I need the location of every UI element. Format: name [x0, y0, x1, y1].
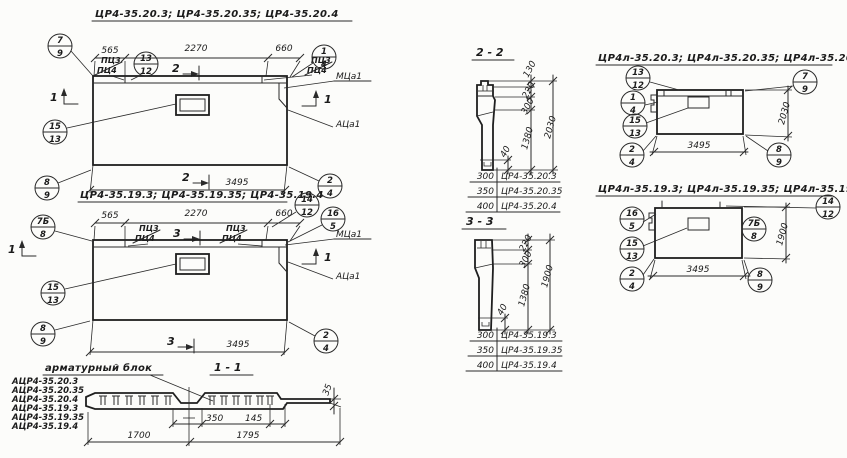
callout-bot: 4: [320, 60, 327, 70]
callout-top: 7Б: [748, 219, 761, 229]
callout-7-9: 7 9: [48, 34, 93, 76]
dim-stack: 220 300 1380 1900 40: [478, 233, 556, 334]
callout-top: 2: [327, 176, 333, 186]
dim-chain-top: 565 2270 660: [91, 209, 304, 241]
section-title: 3 - 3: [466, 215, 494, 228]
table-width: 400: [477, 202, 494, 212]
drawing-facade-l20: ЦР4л-35.20.3; ЦР4л-35.20.35; ЦР4л-35.20.…: [596, 53, 847, 168]
callout-7b-8: 7Б 8: [31, 215, 92, 241]
callout-top: 15: [629, 116, 641, 126]
callout-bot: 4: [326, 189, 333, 199]
rebar-item: АЦР4-35.19.4: [11, 422, 78, 432]
rebar-block-list: арматурный блок АЦР4-35.20.3 АЦР4-35.20.…: [11, 362, 213, 432]
section-title: 2 - 2: [476, 46, 504, 59]
drawing-title: ЦР4л-35.20.3; ЦР4л-35.20.35; ЦР4л-35.20.…: [598, 53, 847, 64]
callout-bot: 9: [802, 85, 808, 95]
dim-660: 660: [275, 44, 292, 54]
dim-3495: 3495: [688, 141, 711, 151]
tag-pc-right: ПЦ3 ПЦ4: [220, 224, 262, 246]
callout-top: 2: [629, 269, 635, 279]
callout-top: 8: [776, 145, 782, 155]
drawing-title: ЦР4-35.20.3; ЦР4-35.20.35; ЦР4-35.20.4: [95, 9, 339, 20]
label-aca1: АЦа1: [335, 272, 360, 282]
mark-table: 300 ЦР4-35.20.3 350 ЦР4-35.20.35 400 ЦР4…: [466, 168, 563, 212]
callout-bot: 12: [140, 67, 152, 77]
table-width: 300: [477, 331, 494, 341]
tag-pc4: ПЦ4: [135, 234, 155, 243]
callout-bot: 4: [628, 282, 635, 292]
panel-opening: [688, 218, 709, 230]
callout-15-13: 15 13: [620, 228, 687, 262]
dim-2030: 2030: [543, 115, 559, 140]
callout-bot: 12: [632, 81, 644, 91]
table-mark: ЦР4-35.20.3: [501, 172, 557, 182]
callout-bot: 9: [40, 337, 46, 347]
dim-565: 565: [101, 211, 118, 221]
panel-outline: [655, 208, 742, 258]
cut-marker-2-top: 2: [172, 62, 199, 80]
callout-bot: 13: [626, 252, 638, 262]
cut-label: 2: [182, 171, 190, 184]
dim-300: 300: [518, 249, 535, 269]
cut-marker-2-bottom: 2: [182, 171, 209, 189]
callout-top: 13: [632, 68, 644, 78]
section-title: 1 - 1: [214, 361, 242, 374]
cut-marker-1-left: 1: [8, 240, 36, 256]
callout-top: 7Б: [37, 217, 50, 227]
callout-bot: 9: [57, 49, 63, 59]
callout-bot: 12: [822, 210, 834, 220]
callout-top: 7: [802, 72, 808, 82]
dim-1900: 1900: [540, 264, 556, 289]
callout-top: 14: [822, 197, 834, 207]
callout-7-9: 7 9: [745, 70, 817, 95]
callout-14-12: 14 12: [726, 195, 840, 220]
callout-8-9: 8 9: [744, 260, 772, 293]
callout-8-9: 8 9: [746, 136, 791, 168]
callout-bot: 12: [301, 208, 313, 218]
dim-130: 130: [522, 59, 539, 79]
callout-top: 2: [629, 145, 635, 155]
callout-bot: 8: [40, 230, 46, 240]
section-outline: [86, 393, 330, 409]
callout-top: 7: [57, 36, 63, 46]
dim-3495: 3495: [226, 178, 249, 188]
tag-pc4: ПЦ4: [222, 234, 242, 243]
section-3-3: 3 - 3 220 300 1380 1900 40 300 ЦР4-35.19…: [462, 215, 563, 371]
callout-bot: 13: [47, 296, 59, 306]
tag-pc-left: ПЦ3 ПЦ4: [128, 224, 160, 246]
panel-outline: [93, 240, 287, 320]
drawing-facade-20: ЦР4-35.20.3; ЦР4-35.20.35; ЦР4-35.20.4 5…: [35, 9, 371, 201]
cut-label: 1: [8, 243, 16, 256]
callout-bot: 9: [44, 191, 50, 201]
callout-top: 15: [49, 122, 61, 132]
table-width: 350: [477, 346, 494, 356]
dim-total-bottom: 3495: [650, 136, 748, 156]
callout-15-13: 15 13: [43, 104, 176, 145]
dim-660: 660: [275, 209, 292, 219]
callout-bot: 4: [322, 344, 329, 354]
section-outline: [477, 81, 495, 170]
dim-1380: 1380: [520, 126, 536, 151]
drawing-facade-l19: ЦР4л-35.19.3; ЦР4л-35.19.35; ЦР4л-35.19.…: [596, 184, 847, 293]
callout-top: 13: [140, 54, 152, 64]
callout-top: 14: [301, 195, 313, 205]
dim-chain-middle: 350 145: [169, 404, 289, 428]
panel-outline: [93, 76, 287, 165]
table-mark: ЦР4-35.19.35: [501, 346, 563, 356]
dim-145: 145: [245, 414, 262, 424]
callout-15-13: 15 13: [41, 264, 176, 306]
cut-marker-1-right: 1: [302, 248, 332, 264]
callout-top: 15: [47, 283, 59, 293]
cut-label: 1: [50, 91, 58, 104]
cut-label: 3: [173, 227, 181, 240]
dim-2270: 2270: [185, 44, 208, 54]
callout-top: 1: [321, 47, 327, 57]
callout-bot: 13: [629, 129, 641, 139]
callout-bot: 9: [776, 158, 782, 168]
table-mark: ЦР4-35.19.4: [501, 361, 557, 371]
callout-top: 1: [630, 93, 636, 103]
callout-top: 8: [757, 270, 763, 280]
dim-3495: 3495: [687, 265, 710, 275]
callout-bot: 5: [629, 222, 635, 232]
label-aca1: АЦа1: [335, 120, 360, 130]
dim-1380: 1380: [517, 283, 533, 308]
table-mark: ЦР4-35.19.3: [501, 331, 557, 341]
callout-bot: 4: [628, 158, 635, 168]
dim-height-right: 2030: [745, 86, 793, 141]
cut-label: 2: [172, 62, 180, 75]
section-outline: [475, 240, 493, 330]
callout-bot: 8: [751, 232, 757, 242]
panel-opening: [688, 97, 709, 108]
dim-stack: 130 220 300 1380 2030 40: [480, 59, 559, 174]
drawing-title: ЦР4л-35.19.3; ЦР4л-35.19.35; ЦР4л-35.19.…: [598, 184, 847, 195]
cut-label: 3: [167, 335, 175, 348]
drawing-title: ЦР4-35.19.3; ЦР4-35.19.35; ЦР4-35.19.4: [80, 190, 324, 201]
dim-565: 565: [101, 46, 118, 56]
callout-13-12: 13 12: [626, 66, 679, 91]
callout-top: 8: [40, 324, 46, 334]
cut-marker-1-left: 1: [50, 88, 78, 104]
callout-top: 8: [44, 178, 50, 188]
blueprint-sheet: ЦР4-35.20.3; ЦР4-35.20.35; ЦР4-35.20.4 5…: [0, 0, 847, 458]
mark-table: 300 ЦР4-35.19.3 350 ЦР4-35.19.35 400 ЦР4…: [466, 328, 563, 371]
dim-chain-top: 565 2270 660: [91, 44, 304, 77]
callout-2-4: 2 4: [289, 322, 338, 354]
dim-1900: 1900: [775, 222, 791, 247]
tag-pc4: ПЦ4: [97, 66, 117, 75]
callout-bot: 5: [330, 222, 336, 232]
dim-1700: 1700: [128, 431, 151, 441]
rebar-title: арматурный блок: [45, 362, 152, 374]
dim-total-bottom: 3495: [86, 320, 289, 356]
callout-7b-8: 7Б 8: [742, 217, 766, 242]
cut-label: 1: [324, 251, 332, 264]
drawing-facade-19: ЦР4-35.19.3; ЦР4-35.19.35; ЦР4-35.19.4 5…: [8, 190, 371, 356]
table-mark: ЦР4-35.20.35: [501, 187, 563, 197]
dim-2030: 2030: [777, 101, 793, 126]
dim-1795: 1795: [237, 431, 260, 441]
table-width: 400: [477, 361, 494, 371]
cut-marker-1-right: 1: [302, 90, 332, 106]
table-width: 350: [477, 187, 494, 197]
dim-35: 35: [321, 383, 334, 397]
cut-label: 1: [324, 93, 332, 106]
callout-top: 16: [327, 209, 339, 219]
dim-350: 350: [206, 414, 223, 424]
cut-marker-3-bottom: 3: [167, 335, 194, 353]
dim-3495: 3495: [227, 340, 250, 350]
panel-opening: [176, 254, 209, 274]
table-mark: ЦР4-35.20.4: [501, 202, 557, 212]
dim-2270: 2270: [185, 209, 208, 219]
callout-16-5: 16 5: [620, 207, 656, 232]
callout-bot: 9: [757, 283, 763, 293]
callout-8-9: 8 9: [31, 321, 90, 347]
callout-top: 15: [626, 239, 638, 249]
panel-opening: [176, 95, 209, 115]
callout-top: 16: [626, 209, 638, 219]
callout-bot: 13: [49, 135, 61, 145]
callout-top: 2: [323, 331, 329, 341]
dim-total-bottom: 3495: [648, 260, 750, 280]
section-2-2: 2 - 2 130 220 300 1380 2030 40 300 ЦР4-3…: [466, 46, 563, 212]
table-width: 300: [477, 172, 494, 182]
blueprint-svg: ЦР4-35.20.3; ЦР4-35.20.35; ЦР4-35.20.4 5…: [0, 0, 847, 458]
cut-marker-3-top: 3: [173, 227, 200, 245]
